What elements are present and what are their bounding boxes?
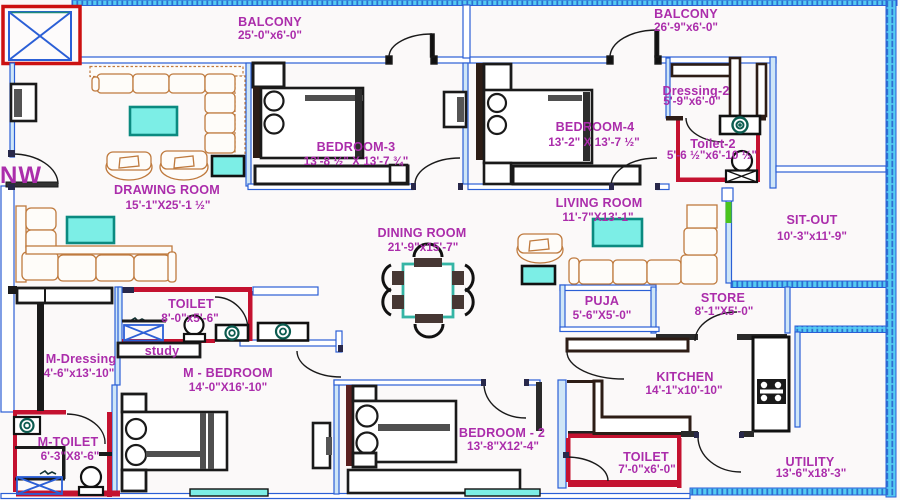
svg-text:5'-6"X5'-0": 5'-6"X5'-0" <box>573 308 632 322</box>
svg-text:6'-3"X8'-6": 6'-3"X8'-6" <box>41 449 100 463</box>
svg-text:5'-6 ½"x6'-10 ½": 5'-6 ½"x6'-10 ½" <box>667 148 757 162</box>
svg-text:13'-8 ½" X 13'-7 ¾": 13'-8 ½" X 13'-7 ¾" <box>304 154 409 168</box>
svg-text:25'-0"x6'-0": 25'-0"x6'-0" <box>238 28 302 42</box>
svg-text:NW: NW <box>0 162 42 189</box>
svg-text:M-TOILET: M-TOILET <box>38 435 99 449</box>
svg-text:TOILET: TOILET <box>168 297 214 311</box>
svg-text:26'-9"x6'-0": 26'-9"x6'-0" <box>654 20 718 34</box>
svg-text:8'-1"X5'-0": 8'-1"X5'-0" <box>695 304 754 318</box>
svg-text:BEDROOM-3: BEDROOM-3 <box>317 140 396 154</box>
svg-text:M - BEDROOM: M - BEDROOM <box>183 366 273 380</box>
svg-text:BEDROOM - 2: BEDROOM - 2 <box>459 426 545 440</box>
svg-text:LIVING ROOM: LIVING ROOM <box>556 196 643 210</box>
svg-text:study: study <box>145 344 180 358</box>
svg-text:4'-6"x13'-10": 4'-6"x13'-10" <box>44 366 115 380</box>
svg-text:5'-9"x6'-0": 5'-9"x6'-0" <box>663 94 720 108</box>
svg-text:15'-1"X25'-1 ½": 15'-1"X25'-1 ½" <box>125 198 210 212</box>
svg-text:8'-0"x5'-6": 8'-0"x5'-6" <box>161 311 218 325</box>
svg-text:STORE: STORE <box>701 291 745 305</box>
svg-text:14'-0"X16'-10": 14'-0"X16'-10" <box>189 380 267 394</box>
svg-text:7'-0"x6'-0": 7'-0"x6'-0" <box>618 462 675 476</box>
svg-text:DINING ROOM: DINING ROOM <box>378 226 467 240</box>
svg-text:KITCHEN: KITCHEN <box>656 370 713 384</box>
svg-text:BALCONY: BALCONY <box>654 7 718 21</box>
svg-text:13'-8"X12'-4": 13'-8"X12'-4" <box>467 439 539 453</box>
svg-text:11'-7"X13'-1": 11'-7"X13'-1" <box>562 210 633 224</box>
svg-text:14'-1"x10'-10": 14'-1"x10'-10" <box>645 383 722 397</box>
svg-text:BALCONY: BALCONY <box>238 15 302 29</box>
svg-text:13'-6"x18'-3": 13'-6"x18'-3" <box>776 466 847 480</box>
svg-text:21'-9"x15'-7": 21'-9"x15'-7" <box>388 240 459 254</box>
svg-text:13'-2" X 13'-7 ½": 13'-2" X 13'-7 ½" <box>548 135 640 149</box>
svg-text:DRAWING ROOM: DRAWING ROOM <box>114 183 220 197</box>
svg-text:PUJA: PUJA <box>585 294 619 308</box>
svg-text:M-Dressing: M-Dressing <box>46 352 117 366</box>
svg-text:SIT-OUT: SIT-OUT <box>786 213 837 227</box>
svg-text:BEDROOM-4: BEDROOM-4 <box>556 120 635 134</box>
svg-text:10'-3"x11'-9": 10'-3"x11'-9" <box>777 229 847 243</box>
